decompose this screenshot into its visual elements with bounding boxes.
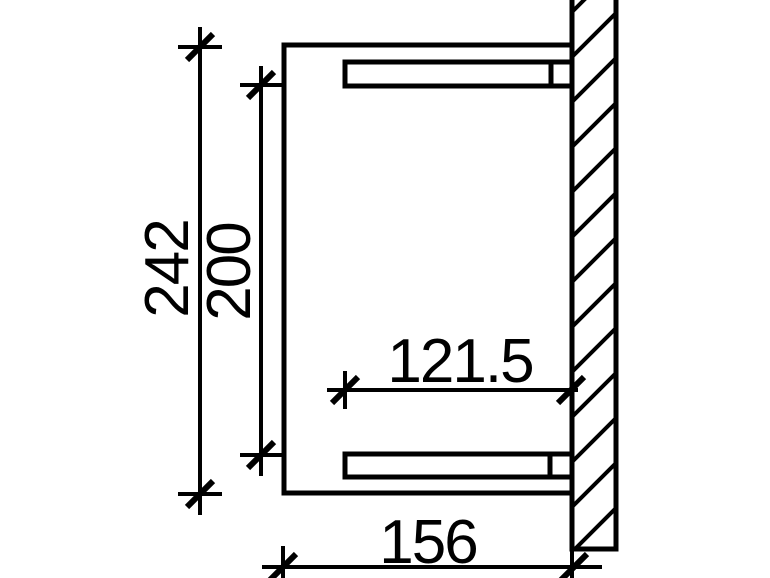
- canopy-edge: [284, 45, 572, 493]
- wall-section: [572, 0, 616, 552]
- dimension-label: 242: [133, 220, 202, 317]
- technical-drawing: 242 200 121.5 156: [0, 0, 770, 578]
- dimension-label: 156: [379, 508, 476, 577]
- canopy-outline: [284, 45, 572, 493]
- dimension-beam-length: 121.5: [327, 327, 584, 409]
- canopy-plan-drawing: 242 200 121.5 156: [0, 0, 770, 578]
- dimension-beam-spacing: 200: [195, 66, 284, 476]
- wall-hatch: [572, 0, 616, 552]
- dimension-projection: 156: [262, 508, 602, 578]
- roof-beam-bottom: [345, 454, 572, 477]
- dimension-label: 200: [195, 223, 264, 321]
- beam-body: [345, 62, 572, 86]
- dimension-label: 121.5: [387, 327, 532, 396]
- beam-body: [345, 454, 572, 477]
- roof-beam-top: [345, 62, 572, 86]
